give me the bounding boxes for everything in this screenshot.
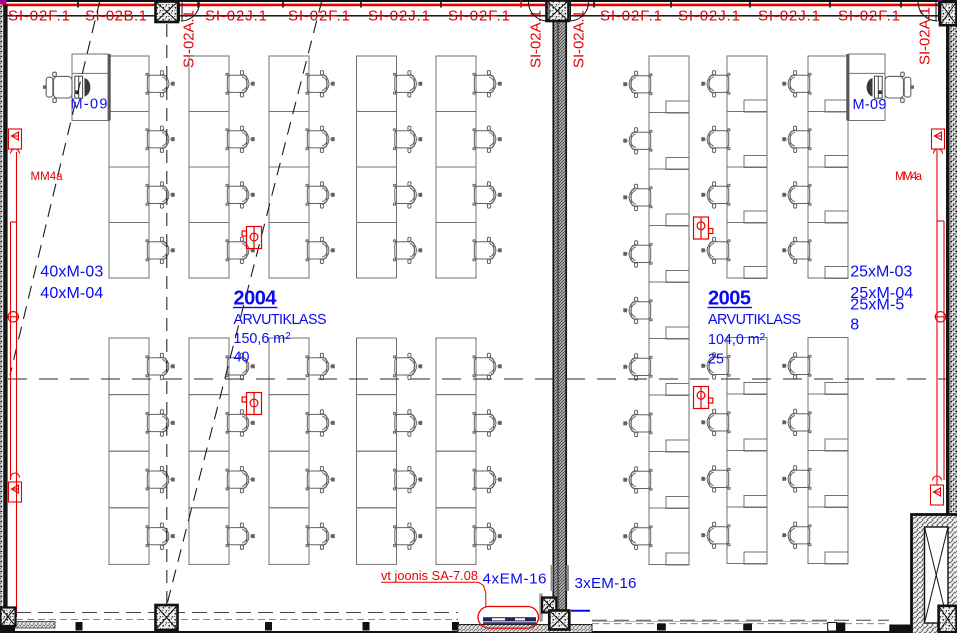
svg-text:MM4a: MM4a <box>895 171 923 183</box>
svg-text:SI-02J.1: SI-02J.1 <box>678 8 740 25</box>
svg-text:40xM-03: 40xM-03 <box>40 264 103 281</box>
svg-text:40xM-04: 40xM-04 <box>40 285 103 302</box>
svg-text:SI-02F.1: SI-02F.1 <box>600 8 662 25</box>
svg-text:SI-02J.1: SI-02J.1 <box>368 8 430 25</box>
svg-text:SI-02J.1: SI-02J.1 <box>205 8 267 25</box>
svg-text:4xEM-16: 4xEM-16 <box>483 571 547 588</box>
svg-text:ARVUTIKLASS: ARVUTIKLASS <box>708 312 801 328</box>
svg-text:SI-02F.1: SI-02F.1 <box>838 8 900 25</box>
svg-text:104,0 m2: 104,0 m2 <box>708 332 766 348</box>
svg-text:25xM-5: 25xM-5 <box>850 297 904 314</box>
svg-text:2004: 2004 <box>234 288 278 310</box>
svg-text:8: 8 <box>850 317 859 334</box>
svg-text:vt joonis SA-7.08: vt joonis SA-7.08 <box>381 568 478 583</box>
svg-text:SI-02F.1: SI-02F.1 <box>8 8 70 25</box>
svg-text:SI-02A.1: SI-02A.1 <box>917 7 934 65</box>
svg-text:150,6 m2: 150,6 m2 <box>234 331 292 347</box>
svg-text:SI-02F.1: SI-02F.1 <box>448 8 510 25</box>
svg-text:M-09: M-09 <box>853 97 887 113</box>
svg-text:3xEM-16: 3xEM-16 <box>575 575 637 592</box>
svg-text:40: 40 <box>234 350 250 366</box>
svg-text:ARVUTIKLASS: ARVUTIKLASS <box>234 312 327 328</box>
svg-text:MM4a: MM4a <box>31 171 64 183</box>
svg-text:2005: 2005 <box>708 288 751 310</box>
svg-text:SI-02J.1: SI-02J.1 <box>758 8 820 25</box>
svg-text:SI-02A.1: SI-02A.1 <box>528 10 545 68</box>
svg-text:25xM-03: 25xM-03 <box>850 264 912 281</box>
svg-text:25: 25 <box>708 352 724 368</box>
